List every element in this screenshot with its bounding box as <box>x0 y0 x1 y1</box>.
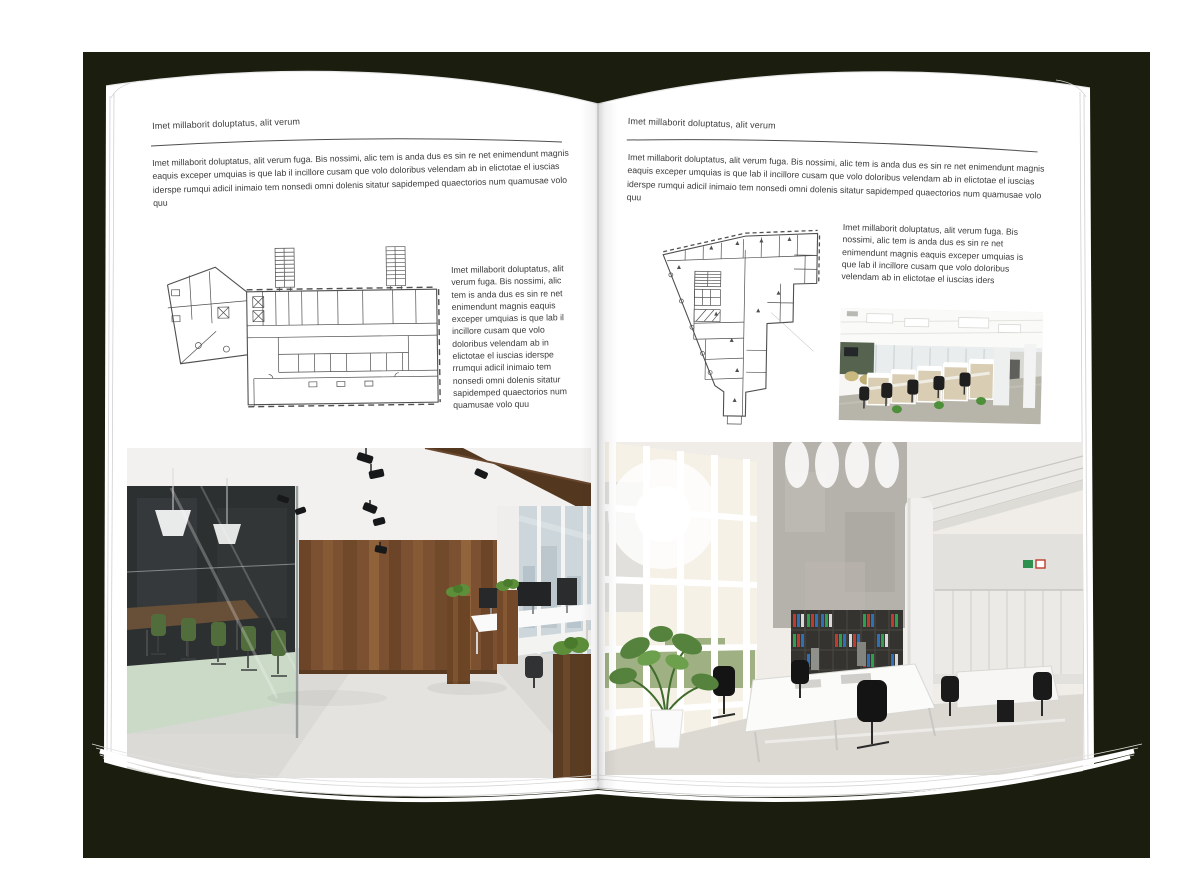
office-photo-loft <box>127 448 591 778</box>
left-page-caption: Imet millaborit doluptatus, alit verum f… <box>451 262 571 411</box>
left-page-intro: Imet millaborit doluptatus, alit verum f… <box>152 147 573 211</box>
floor-plan-left <box>157 224 450 414</box>
loft-office-scene <box>127 448 591 778</box>
cabinets <box>935 590 1083 674</box>
first-aid-sign-icon <box>1036 560 1045 568</box>
floor-plan-right-lines <box>660 228 819 426</box>
right-page-caption: Imet millaborit doluptatus, alit verum f… <box>841 221 1039 288</box>
bright-office-scene <box>605 442 1083 775</box>
office-photo-cubicles <box>839 308 1043 424</box>
magazine-mockup: Imet millaborit doluptatus, alit verum I… <box>0 0 1200 891</box>
office-photo-bright <box>605 442 1083 775</box>
left-header-rule <box>150 137 564 149</box>
concrete-wall <box>773 442 909 628</box>
exit-sign-icon <box>1023 560 1033 568</box>
floor-plan-right <box>644 218 830 427</box>
floor-plan-left-lines <box>167 246 440 408</box>
cubicle-office-scene <box>839 308 1043 424</box>
